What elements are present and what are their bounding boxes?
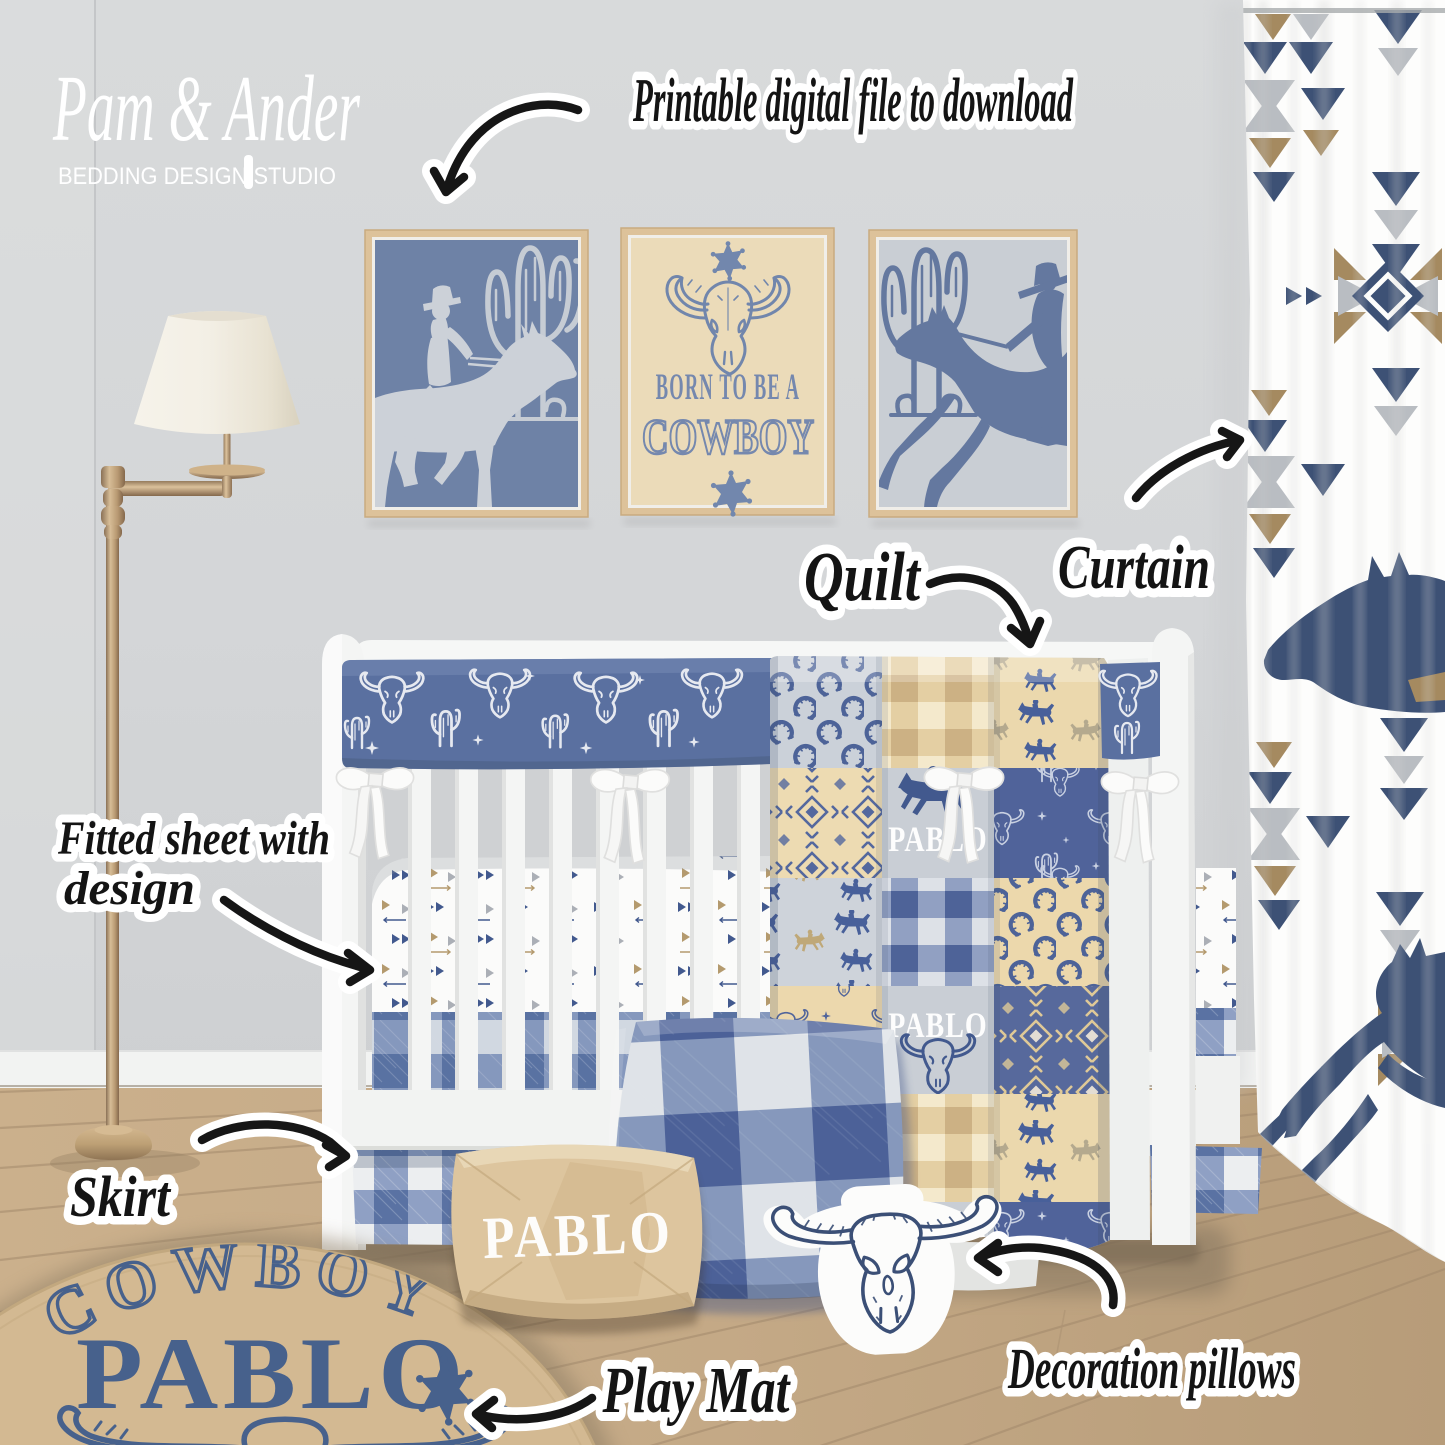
svg-text:Printable digital file to down: Printable digital file to download [632, 67, 1073, 135]
svg-text:BEDDING DESIGN STUDIO: BEDDING DESIGN STUDIO [58, 163, 336, 190]
svg-text:Pam & Ander: Pam & Ander [52, 57, 360, 161]
svg-text:COWBOY: COWBOY [642, 409, 814, 464]
svg-text:design: design [64, 862, 195, 915]
svg-text:Quilt: Quilt [804, 539, 922, 616]
svg-text:Fitted sheet with: Fitted sheet with [57, 812, 330, 865]
svg-text:Curtain: Curtain [1058, 534, 1210, 602]
svg-text:Skirt: Skirt [70, 1164, 172, 1229]
svg-text:BORN TO BE A: BORN TO BE A [656, 367, 800, 408]
svg-text:Decoration pillows: Decoration pillows [1007, 1336, 1296, 1401]
svg-text:PABLO: PABLO [76, 1317, 468, 1431]
svg-text:Play Mat: Play Mat [602, 1354, 791, 1427]
svg-text:PABLO: PABLO [482, 1199, 674, 1272]
